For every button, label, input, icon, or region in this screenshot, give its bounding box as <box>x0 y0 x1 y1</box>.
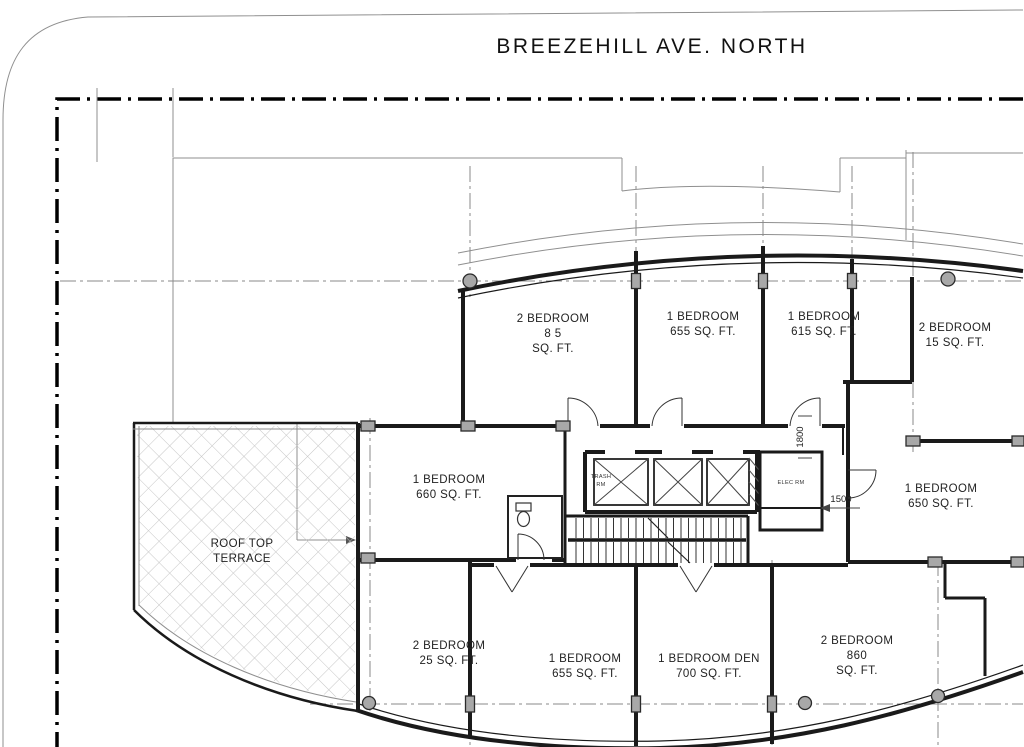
south-arc-wall <box>356 672 1023 747</box>
north-arc-wall <box>458 255 1023 291</box>
door-unit835 <box>568 398 598 426</box>
column-marker <box>1012 436 1024 446</box>
trash-room-label-line1: TRASH <box>591 474 611 480</box>
column-marker <box>759 274 768 289</box>
column-marker <box>928 557 942 567</box>
column-marker <box>1011 557 1024 567</box>
dimension-1800: 1800 <box>795 426 806 447</box>
column-marker <box>461 421 475 431</box>
unit-label-line: 1 BEDROOM DEN <box>658 653 760 665</box>
unit-label-line: 1 BEDROOM <box>905 483 978 495</box>
unit-label-line: 615 SQ. FT. <box>791 326 857 338</box>
unit-label-line: 700 SQ. FT. <box>676 668 742 680</box>
unit-label-line: 25 SQ. FT. <box>420 655 479 667</box>
unit-label-line: 660 SQ. FT. <box>416 489 482 501</box>
unit-label-line: 655 SQ. FT. <box>552 668 618 680</box>
door-unit-den <box>680 566 712 592</box>
label-unit-1br-655-bottom: 1 BEDROOM 655 SQ. FT. <box>549 653 622 680</box>
unit-label-line: 1 BEDROOM <box>667 311 740 323</box>
column-circle <box>363 697 376 710</box>
column-marker <box>361 553 375 563</box>
column-marker <box>361 421 375 431</box>
bathroom-660 <box>508 496 562 558</box>
elec-room-walls <box>760 452 822 530</box>
column-marker <box>556 421 570 431</box>
building-core: ELEC RM TRASH RM <box>565 426 822 565</box>
balcony-arc-outer <box>458 223 1023 253</box>
unit-label-line: TERRACE <box>213 553 271 565</box>
unit-label-line: 2 BEDROOM <box>517 313 590 325</box>
floor-plan-page: BREEZEHILL AVE. NORTH <box>0 0 1024 747</box>
unit-label-line: 1 BEDROOM <box>788 311 861 323</box>
door-unit655-top <box>652 398 682 426</box>
door-unit650 <box>848 470 876 498</box>
north-arc-wall-inner <box>458 262 1023 298</box>
electrical-room: ELEC RM <box>760 452 822 530</box>
door-unit655-bottom <box>496 566 528 592</box>
walls-right-mid <box>843 382 1023 562</box>
unit-label-line: 650 SQ. FT. <box>908 498 974 510</box>
column-marker <box>906 436 920 446</box>
column-circle <box>932 690 945 703</box>
label-unit-2br-860: 2 BEDROOM 860 SQ. FT. <box>821 635 894 677</box>
roof-top-terrace <box>133 423 358 711</box>
unit-label-line: SQ. FT. <box>836 665 878 677</box>
column-circle <box>463 274 477 288</box>
unit-label-line: 2 BEDROOM <box>919 322 992 334</box>
elevator-cells <box>594 459 749 505</box>
label-unit-1br-660: 1 BEDROOM 660 SQ. FT. <box>413 474 486 501</box>
unit-label-line: SQ. FT. <box>532 343 574 355</box>
column-marker <box>848 274 857 289</box>
unit-label-line: 2 BEDROOM <box>821 635 894 647</box>
label-unit-2br-925: 2 BEDROOM 25 SQ. FT. <box>413 640 486 667</box>
elec-room-label: ELEC RM <box>778 480 805 486</box>
unit-label-line: 655 SQ. FT. <box>670 326 736 338</box>
column-marker <box>632 696 641 712</box>
unit-label-line: 2 BEDROOM <box>413 640 486 652</box>
column-marker <box>768 696 777 712</box>
unit-label-line: 8 5 <box>544 328 561 340</box>
unit860-right-wall <box>945 562 985 676</box>
unit-label-line: ROOF TOP <box>211 538 274 550</box>
dimension-annotations: 1800 1500 <box>795 416 860 512</box>
unit-label-line: 1 BEDROOM <box>413 474 486 486</box>
column-circle <box>941 272 955 286</box>
door-unit615 <box>790 398 820 426</box>
label-unit-1br-den-700: 1 BEDROOM DEN 700 SQ. FT. <box>658 653 760 680</box>
column-circle <box>799 697 812 710</box>
trash-room-label-line2: RM <box>596 482 605 488</box>
label-unit-1br-655-top: 1 BEDROOM 655 SQ. FT. <box>667 311 740 338</box>
label-unit-2br-835: 2 BEDROOM 8 5 SQ. FT. <box>517 313 590 355</box>
dimension-1500: 1500 <box>830 494 851 505</box>
label-unit-2br-915: 2 BEDROOM 15 SQ. FT. <box>919 322 992 349</box>
street-name-label: BREEZEHILL AVE. NORTH <box>496 35 807 58</box>
column-marker <box>632 274 641 289</box>
unit-label-line: 15 SQ. FT. <box>926 337 985 349</box>
floor-plan-drawing: BREEZEHILL AVE. NORTH <box>0 0 1024 747</box>
label-unit-1br-650: 1 BEDROOM 650 SQ. FT. <box>905 483 978 510</box>
label-unit-1br-615: 1 BEDROOM 615 SQ. FT. <box>788 311 861 338</box>
column-marker <box>466 696 475 712</box>
unit-label-line: 1 BEDROOM <box>549 653 622 665</box>
unit-label-line: 860 <box>847 650 867 662</box>
